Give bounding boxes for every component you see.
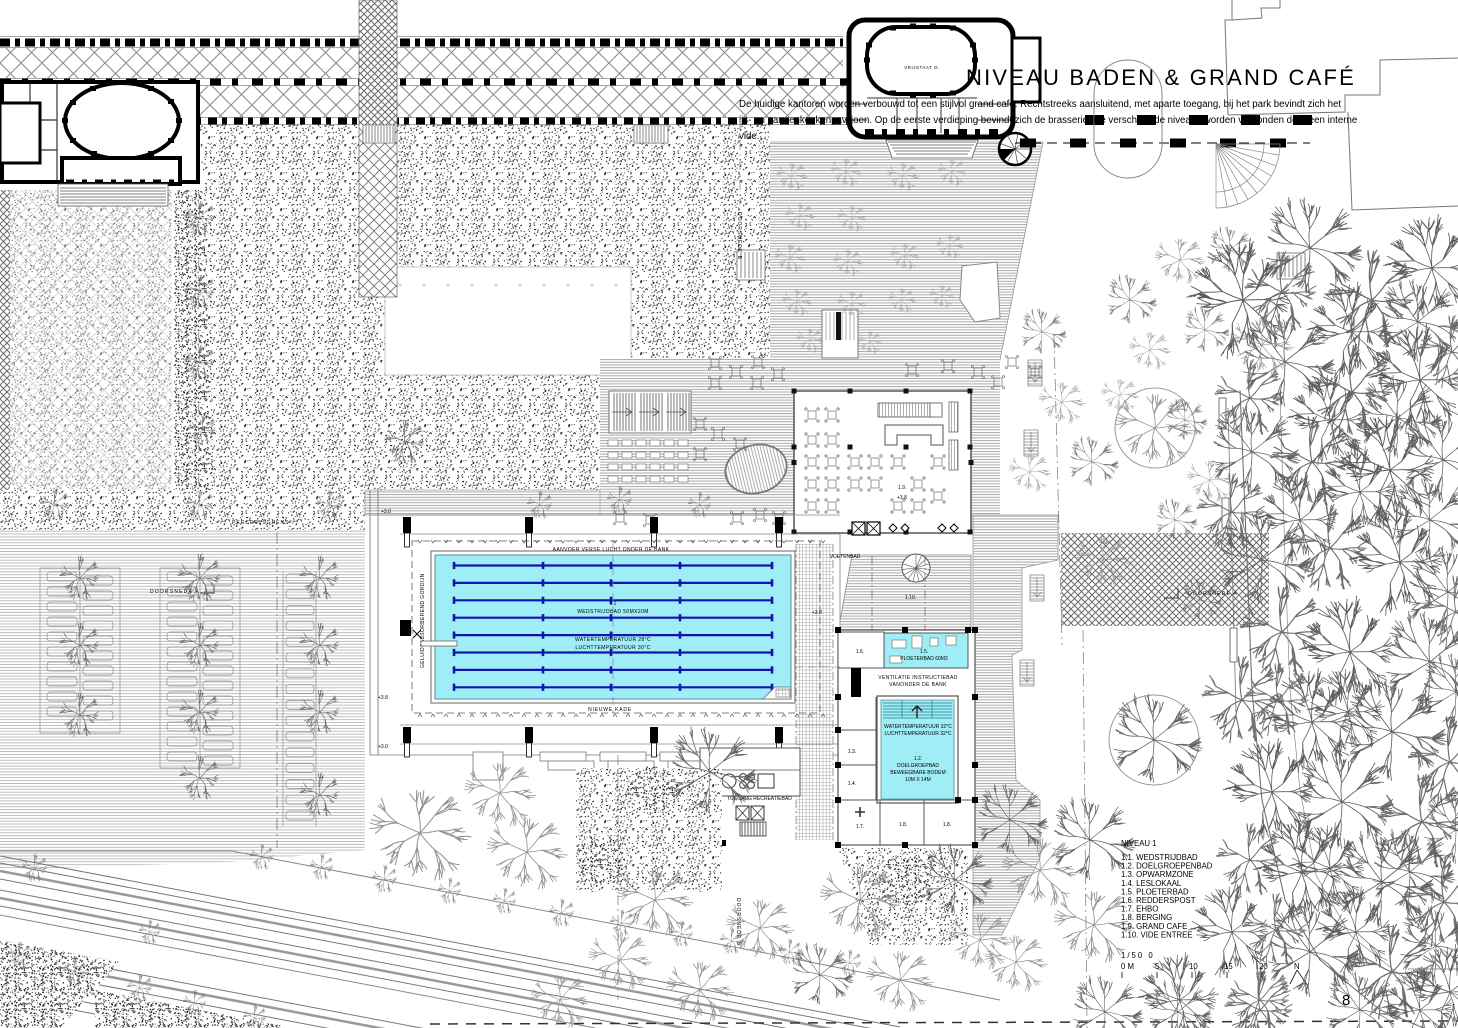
svg-text:NIEUWE KADE: NIEUWE KADE [588, 707, 632, 713]
svg-text:0 M: 0 M [1121, 962, 1134, 971]
svg-text:PLOETERBAD 60M2: PLOETERBAD 60M2 [900, 656, 948, 662]
svg-text:5: 5 [1155, 962, 1160, 971]
svg-text:15: 15 [1224, 962, 1233, 971]
svg-text:1.4.: 1.4. [848, 781, 856, 787]
svg-text:TOEGANG RECREATIEBAD: TOEGANG RECREATIEBAD [727, 796, 792, 802]
svg-text:1.8.: 1.8. [943, 822, 951, 828]
svg-text:1.2.: 1.2. [914, 756, 922, 762]
svg-text:vide.: vide. [739, 131, 759, 142]
svg-text:GELUIDSABSORBEREND GORDIJN: GELUIDSABSORBEREND GORDIJN [420, 573, 426, 668]
svg-text:+3.0: +3.0 [381, 509, 391, 515]
svg-text:DOORSNEDE A: DOORSNEDE A [150, 589, 200, 595]
svg-text:+3.0: +3.0 [378, 744, 388, 750]
svg-text:+3.8: +3.8 [812, 610, 822, 616]
svg-text:LUCHTTEMPERATUUR 32°C: LUCHTTEMPERATUUR 32°C [885, 731, 952, 737]
svg-text:PERCEELSGRENS: PERCEELSGRENS [232, 520, 289, 526]
svg-text:20: 20 [1259, 962, 1268, 971]
svg-text:1.6.: 1.6. [856, 649, 864, 655]
svg-text:BEWEEGBARE BODEM: BEWEEGBARE BODEM [890, 770, 945, 776]
svg-text:10: 10 [1189, 962, 1198, 971]
svg-text:AANVOER VERSE LUCHT ONDER D: AANVOER VERSE LUCHT ONDER DE BANK [553, 547, 670, 553]
svg-text:1.3.: 1.3. [848, 749, 856, 755]
svg-text:ijs- en pannenkoekenpaviljoen.: ijs- en pannenkoekenpaviljoen. Op de eer… [739, 115, 1357, 126]
svg-text:NIVEAU BADEN & GRAND CAFÉ: NIVEAU BADEN & GRAND CAFÉ [966, 65, 1356, 90]
svg-text:1.8.: 1.8. [899, 822, 907, 828]
svg-text:+3.8: +3.8 [378, 695, 388, 701]
svg-text:De huidige kantoren worden ver: De huidige kantoren worden verbouwd tot … [739, 99, 1341, 110]
svg-text:1/50 0: 1/50 0 [1121, 951, 1155, 960]
svg-text:VENTILATIE INSTRUCTIEBAD: VENTILATIE INSTRUCTIEBAD [878, 675, 958, 681]
svg-text:WATERTEMPERATUUR 32°C: WATERTEMPERATUUR 32°C [884, 724, 952, 730]
svg-text:1.7.: 1.7. [856, 824, 864, 830]
svg-text:1.10.: 1.10. [905, 595, 916, 601]
svg-text:1.10. VIDE ENTREE: 1.10. VIDE ENTREE [1121, 930, 1193, 939]
svg-text:VANONDER DE BANK: VANONDER DE BANK [889, 682, 947, 688]
svg-text:1.9.: 1.9. [898, 485, 906, 491]
svg-text:8: 8 [1342, 992, 1350, 1009]
svg-text:10M X 14M: 10M X 14M [905, 777, 931, 783]
svg-text:VOETENBAD: VOETENBAD [830, 554, 861, 560]
svg-text:1.5.: 1.5. [920, 649, 928, 655]
svg-text:DOELGROEPBAD: DOELGROEPBAD [897, 763, 939, 769]
svg-text:N: N [1294, 962, 1300, 971]
svg-text:VRIJSTAAT O.: VRIJSTAAT O. [904, 65, 940, 70]
svg-text:+3.8: +3.8 [897, 495, 907, 501]
svg-text:DOORSNEDE B: DOORSNEDE B [736, 212, 742, 260]
svg-text:NIVEAU 1: NIVEAU 1 [1121, 839, 1157, 848]
